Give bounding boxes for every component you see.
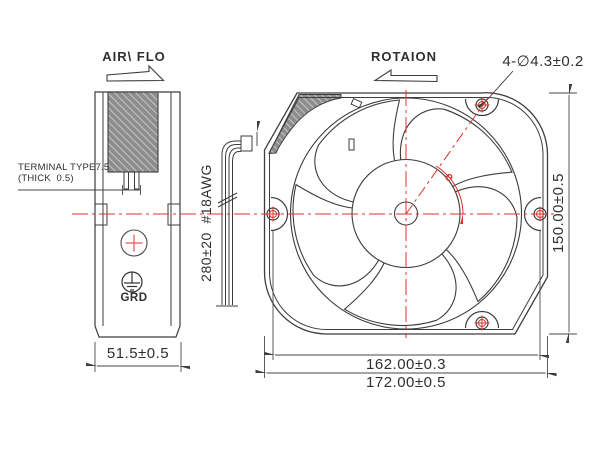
terminal-note-line2: (THICK 0.5) [18,173,74,184]
motor-section-hatch [108,92,158,172]
ground-label: GRD [109,292,159,304]
rotation-label: ROTAION [344,49,464,64]
lead-wires [216,132,257,306]
rim-tab [351,99,362,108]
terminal-leader [18,185,141,195]
airflow-arrow-icon [107,66,164,81]
hole-pitch-dim: 162.00±0.3 [336,356,476,373]
mounting-holes-dim: 4-∅4.3±0.2 [486,52,600,70]
side-view-center-cross [126,235,143,252]
impeller [264,77,524,346]
hole-target-mark [533,207,548,222]
terminal-pin [135,172,140,189]
terminal-pin [124,172,129,189]
wire-end-connector [241,136,252,151]
holes-leader-line [487,71,513,100]
frame-height-dim: 150.00±0.5 [550,153,566,273]
frame-width-dim: 172.00±0.5 [336,374,476,391]
airflow-label: AIR\ FLO [74,49,194,64]
rotation-arrow-icon [375,70,437,82]
hole-target-mark [266,207,281,222]
frame-depth-dim: 51.5±0.5 [78,345,198,362]
terminal-note-line1: TERMINAL TYPE7.5 [18,162,109,173]
hole-target-mark [475,316,490,331]
fan-dimension-drawing: AIR\ FLO ROTAION 4-∅4.3±0.2 150.00±0.5 1… [0,0,600,450]
lead-wire-dim: 280±20 #18AWG [198,138,214,308]
ground-symbol-icon [122,272,142,292]
